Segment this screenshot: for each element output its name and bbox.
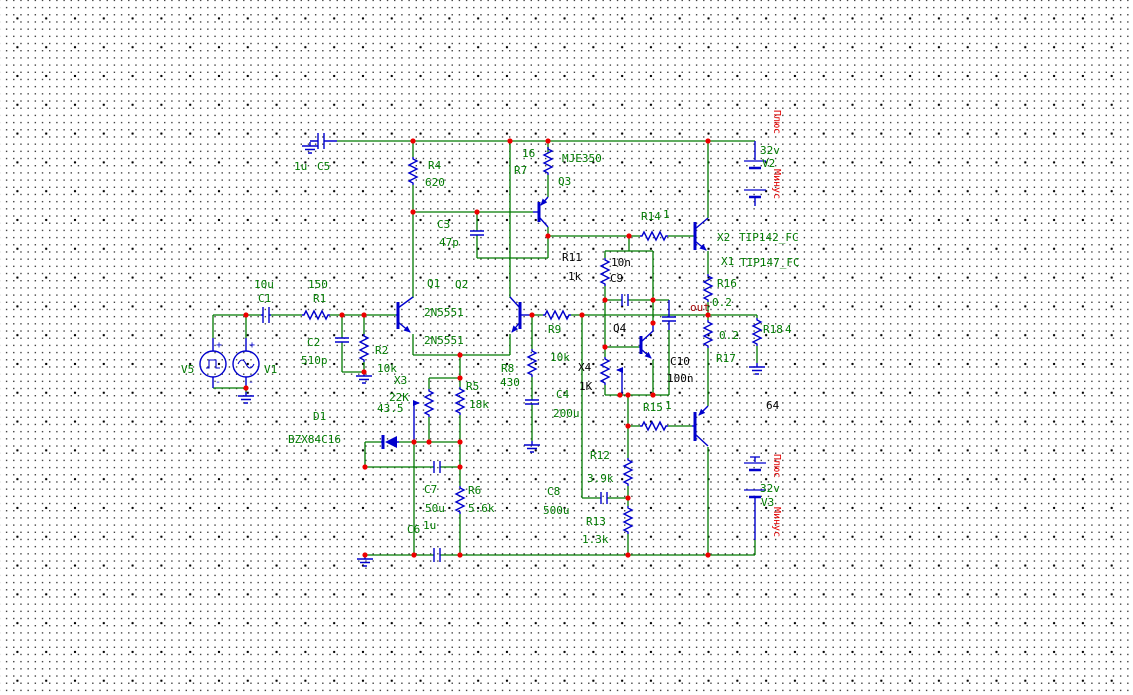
label-r7-name: R7 xyxy=(514,164,527,177)
label-r18-value: 4 xyxy=(785,323,792,336)
capacitor-C8[interactable] xyxy=(601,492,607,504)
label-c6-name: C6 xyxy=(407,523,420,536)
resistor-R17[interactable] xyxy=(704,320,712,348)
capacitor-C2[interactable] xyxy=(335,338,349,342)
v5-plus-sign: + xyxy=(216,340,222,351)
resistor-R6[interactable] xyxy=(456,486,464,514)
transistor-Q3[interactable] xyxy=(533,197,548,227)
v5-minus-sign: - xyxy=(215,377,221,388)
label-c1-value: 10u xyxy=(254,278,274,291)
annotation-64: 64 xyxy=(766,399,780,412)
label-r15-value: 1 xyxy=(665,399,672,412)
label-r5-value: 18k xyxy=(469,398,489,411)
ground-symbol-c4[interactable] xyxy=(524,441,540,452)
resistor-R11[interactable] xyxy=(601,258,609,286)
label-d1-type: BZX84C16 xyxy=(288,433,341,446)
label-r1-name: R1 xyxy=(313,292,326,305)
power-transistor-X1[interactable] xyxy=(692,406,708,446)
resistor-R1[interactable] xyxy=(302,311,330,319)
resistor-R13[interactable] xyxy=(624,506,632,534)
label-q1-name: Q1 xyxy=(427,277,440,290)
label-x2-name: X2 xyxy=(717,231,730,244)
resistor-R18[interactable] xyxy=(753,318,761,346)
resistor-R9[interactable] xyxy=(543,311,571,319)
label-r6-name: R6 xyxy=(468,484,481,497)
capacitor-C6[interactable] xyxy=(434,548,440,562)
resistor-R4[interactable] xyxy=(409,157,417,185)
label-r17-name: R17 xyxy=(716,352,736,365)
label-r8-value: 430 xyxy=(500,376,520,389)
label-c2-value: 510p xyxy=(301,354,328,367)
capacitor-C9[interactable] xyxy=(622,294,628,306)
label-r11-value: 1k xyxy=(568,270,582,283)
label-x4-name: X4 xyxy=(578,361,592,374)
label-r15-name: R15 xyxy=(643,401,663,414)
label-r12-name: R12 xyxy=(590,449,610,462)
label-c10-value: 100n xyxy=(667,372,694,385)
transistor-Q1[interactable] xyxy=(396,297,413,332)
label-c4-name: C4 xyxy=(556,388,570,401)
label-r4-value: 620 xyxy=(425,176,445,189)
label-r18-name: R18 xyxy=(763,323,783,336)
labels: 1u C5 R4 620 16 R7 MJE350 Q3 C3 47p Q1 Q… xyxy=(181,110,800,546)
label-r9-value: 10k xyxy=(550,351,570,364)
label-q2-name: Q2 xyxy=(455,278,468,291)
label-r16-name: R16 xyxy=(717,277,737,290)
label-v2-value: 32v xyxy=(760,144,780,157)
label-v1-name: V1 xyxy=(264,363,277,376)
label-r5-name: R5 xyxy=(466,380,479,393)
label-x1-name: X1 xyxy=(721,255,734,268)
label-r6-value: 5.6k xyxy=(468,502,495,515)
capacitor-C1[interactable] xyxy=(261,307,271,323)
resistor-R5[interactable] xyxy=(456,387,464,415)
label-r4-name: R4 xyxy=(428,159,442,172)
label-r2-name: R2 xyxy=(375,344,388,357)
label-v5-name: V5 xyxy=(181,363,194,376)
label-c10-name: C10 xyxy=(670,355,690,368)
label-r16-value: 0.2 xyxy=(712,296,732,309)
label-r9-name: R9 xyxy=(548,323,561,336)
label-c2-name: C2 xyxy=(307,336,320,349)
wire-segments[interactable] xyxy=(213,141,757,555)
label-r14-name: R14 xyxy=(641,210,661,223)
v1-minus-sign: - xyxy=(248,377,254,388)
label-v3-value: 32v xyxy=(760,482,780,495)
label-c3-value: 47p xyxy=(439,236,459,249)
label-x4-value: 1K xyxy=(579,380,593,393)
label-x1-type: TIP147_FC xyxy=(740,256,800,269)
resistor-R2[interactable] xyxy=(360,334,368,362)
label-c6-value: 1u xyxy=(423,519,436,532)
label-c8-value: 500u xyxy=(543,504,570,517)
label-r8-name: R8 xyxy=(501,362,514,375)
resistor-R14[interactable] xyxy=(640,232,668,240)
label-d1-name: D1 xyxy=(313,410,326,423)
label-x2-type: TIP142_FC xyxy=(739,231,799,244)
potentiometer-X4[interactable] xyxy=(601,357,622,395)
transistor-Q2[interactable] xyxy=(510,297,532,332)
label-c5-name: C5 xyxy=(317,160,330,173)
capacitor-C3[interactable] xyxy=(470,231,484,235)
v1-plus-sign: + xyxy=(249,340,255,351)
net-label-out: out xyxy=(690,301,710,314)
label-c9-name: C9 xyxy=(610,272,623,285)
label-v3-plus: Плюс xyxy=(771,454,782,478)
label-r13-name: R13 xyxy=(586,515,606,528)
label-x3-name: X3 xyxy=(394,374,407,387)
label-v3-minus: Минус xyxy=(771,507,782,537)
zener-D1[interactable] xyxy=(381,435,399,449)
ground-symbol-r18[interactable] xyxy=(749,363,765,374)
transistor-Q4[interactable] xyxy=(639,323,653,358)
label-r14-value: 1 xyxy=(663,208,670,221)
capacitor-C4[interactable] xyxy=(525,400,539,404)
label-q2-type: 2N5551 xyxy=(424,334,464,347)
ground-symbol-c5[interactable] xyxy=(302,142,318,153)
resistor-R15[interactable] xyxy=(640,422,668,430)
label-c5-value: 1u xyxy=(294,160,307,173)
label-q3-name: Q3 xyxy=(558,175,571,188)
label-v2-plus: Плюс xyxy=(771,110,782,134)
source-V5[interactable] xyxy=(200,338,226,388)
label-c3-name: C3 xyxy=(437,218,450,231)
label-c1-name: C1 xyxy=(258,292,271,305)
label-c7-value: 50u xyxy=(425,502,445,515)
resistor-R8[interactable] xyxy=(528,349,536,377)
label-r13-value: 1.3k xyxy=(582,533,609,546)
label-r11-name: R11 xyxy=(562,251,582,264)
capacitor-C7[interactable] xyxy=(434,461,440,473)
label-r12-value: 3.9k xyxy=(587,472,614,485)
label-r17-value: 0.2 xyxy=(719,329,739,342)
power-transistor-X2[interactable] xyxy=(695,218,708,250)
label-v2-minus: Минус xyxy=(771,169,782,199)
schematic-canvas: 1u C5 R4 620 16 R7 MJE350 Q3 C3 47p Q1 Q… xyxy=(0,0,1133,695)
label-c4-value: 200u xyxy=(553,407,580,420)
resistor-R16[interactable] xyxy=(704,274,712,302)
schematic: 1u C5 R4 620 16 R7 MJE350 Q3 C3 47p Q1 Q… xyxy=(0,0,1133,695)
source-V1[interactable] xyxy=(233,338,259,388)
label-q4-name: Q4 xyxy=(613,322,627,335)
label-x3-setting: 43.5 xyxy=(377,402,404,415)
label-r1-value: 150 xyxy=(308,278,328,291)
label-q1-type: 2N5551 xyxy=(424,306,464,319)
ground-symbol-sources[interactable] xyxy=(238,392,254,403)
label-r7-value: 16 xyxy=(522,147,535,160)
label-c8-name: C8 xyxy=(547,485,560,498)
label-q3-type: MJE350 xyxy=(562,152,602,165)
label-c7-name: C7 xyxy=(424,483,437,496)
label-c9-value: 10n xyxy=(611,256,631,269)
resistor-R12[interactable] xyxy=(624,458,632,486)
potentiometer-X3[interactable] xyxy=(414,389,433,442)
